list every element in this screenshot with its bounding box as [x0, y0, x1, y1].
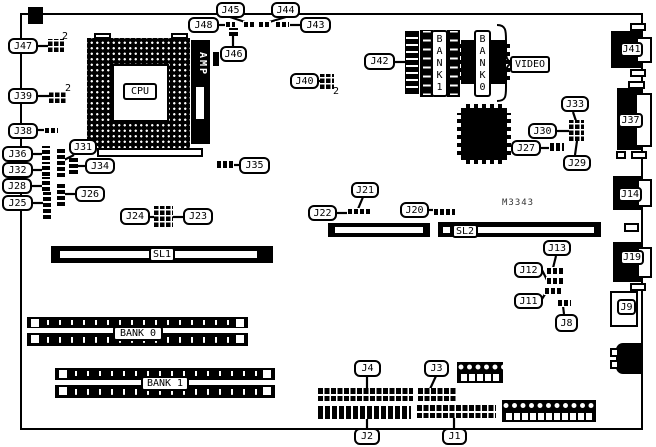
- j38-jumper: [44, 127, 59, 134]
- video-bank1-socket-right: [447, 30, 460, 97]
- edge-tab: [624, 223, 639, 232]
- callout-j12: J12: [514, 262, 543, 278]
- j44-jumper: [258, 21, 271, 28]
- j46-jumper: [229, 28, 238, 36]
- mem-bank0-label: BANK 0: [113, 326, 163, 341]
- video-label: VIDEO: [510, 56, 550, 73]
- j21-j22-jumper: [347, 208, 371, 215]
- callout-j26: J26: [75, 186, 105, 202]
- callout-j45: J45: [216, 2, 245, 18]
- din-keyboard-connector: [28, 7, 43, 24]
- callout-j9: J9: [617, 299, 636, 315]
- callout-j11: J11: [514, 293, 543, 309]
- callout-j25: J25: [2, 195, 33, 211]
- callout-j19: J19: [620, 250, 644, 265]
- slot-sl1-label: SL1: [149, 247, 175, 262]
- j45-jumper: [243, 21, 256, 28]
- power-terminal-small-body: [457, 372, 503, 383]
- j3-header: [418, 388, 456, 401]
- callout-j21: J21: [351, 182, 379, 198]
- j8-jumper: [557, 299, 572, 307]
- callout-j28: J28: [2, 178, 32, 194]
- j1-header: [417, 405, 496, 418]
- callout-j37: J37: [618, 113, 643, 128]
- callout-j41: J41: [620, 42, 643, 57]
- j35-jumper: [216, 160, 234, 169]
- callout-j22: J22: [308, 205, 337, 221]
- power-terminal-small-pins: [457, 362, 503, 372]
- expansion-slot-stripe: [335, 227, 423, 233]
- board-model-text: M3343: [502, 198, 534, 209]
- slot-sl2-label: SL2: [452, 224, 478, 238]
- j36-jumper: [42, 146, 50, 160]
- j12-jumper: [546, 277, 564, 285]
- cpu-label: CPU: [123, 83, 157, 100]
- chipset-chip: [461, 108, 507, 160]
- j27-jumper: [549, 142, 565, 152]
- callout-j46: J46: [220, 46, 247, 62]
- audio-jack-connector: [616, 343, 642, 374]
- callout-j48: J48: [188, 17, 219, 33]
- slot-sl2-stripe: [478, 227, 594, 233]
- j48-jumper: [225, 21, 236, 28]
- callout-j43: J43: [300, 17, 331, 33]
- j25-jumper: [43, 192, 51, 219]
- j28-jumper: [42, 177, 50, 191]
- j40-pin-annotation: 2: [333, 86, 339, 97]
- callout-j1: J1: [442, 428, 467, 445]
- j43-jumper: [275, 21, 290, 28]
- socket-tab: [171, 33, 188, 39]
- edge-tab: [631, 151, 647, 159]
- callout-j40: J40: [290, 73, 319, 89]
- callout-j20: J20: [400, 202, 429, 218]
- j26-jumper: [57, 183, 65, 206]
- callout-j4: J4: [354, 360, 381, 377]
- video-bank1-label: BANK1: [431, 30, 448, 97]
- callout-j8: J8: [555, 314, 578, 332]
- j39-pin-annotation: 2: [65, 83, 71, 94]
- socket-retention-bar: [97, 148, 203, 157]
- power-terminal-large-pins: [502, 400, 596, 411]
- j4-header: [318, 388, 413, 401]
- slot-sl2-notch: [443, 227, 450, 233]
- j32-jumper: [42, 162, 50, 176]
- edge-tab: [630, 23, 646, 31]
- callout-j36: J36: [2, 146, 33, 162]
- callout-j39: J39: [8, 88, 38, 104]
- callout-j34: J34: [85, 158, 115, 174]
- j42-resistor-pack: [405, 31, 419, 94]
- callout-j23: J23: [183, 208, 213, 225]
- j2-header: [318, 406, 411, 419]
- callout-j24: J24: [120, 208, 150, 225]
- callout-j2: J2: [354, 428, 380, 445]
- motherboard-diagram: CPU AMP BANK1 BANK0 VIDEO M3343: [0, 0, 656, 447]
- j31-jumper: [57, 149, 65, 177]
- callout-j32: J32: [2, 162, 33, 178]
- edge-tab: [630, 69, 646, 77]
- callout-j27: J27: [511, 140, 541, 156]
- callout-j42: J42: [364, 53, 395, 70]
- callout-j31: J31: [69, 139, 97, 155]
- power-terminal-large-body: [502, 411, 596, 422]
- audio-jack-nub: [610, 348, 619, 357]
- mem-bank1-label: BANK 1: [141, 376, 189, 391]
- j20-jumper: [433, 208, 456, 216]
- j33-j30-j29-jumper-block: [569, 120, 584, 141]
- video-bank0-label: BANK0: [474, 30, 491, 97]
- j11-jumper: [544, 287, 562, 295]
- j40-jumper: [320, 74, 334, 89]
- callout-j35: J35: [239, 157, 270, 174]
- j34-jumper: [69, 158, 78, 174]
- callout-j3: J3: [424, 360, 449, 377]
- callout-j38: J38: [8, 123, 38, 139]
- regulator-slot: [195, 86, 205, 120]
- callout-j47: J47: [8, 38, 38, 54]
- callout-j14: J14: [618, 187, 642, 202]
- j47-pin-annotation: 2: [62, 31, 68, 42]
- edge-tab: [630, 283, 646, 291]
- socket-tab: [94, 33, 111, 39]
- edge-tab: [628, 81, 645, 89]
- callout-j33: J33: [561, 96, 589, 112]
- j13-jumper: [546, 267, 564, 275]
- j24-j23-jumper-block: [154, 206, 173, 227]
- callout-j44: J44: [271, 2, 300, 18]
- audio-jack-nub: [610, 360, 619, 369]
- callout-j29: J29: [563, 155, 591, 171]
- callout-j13: J13: [543, 240, 571, 256]
- j39-jumper: [49, 91, 66, 103]
- callout-j30: J30: [528, 123, 557, 139]
- amp-label: AMP: [194, 44, 208, 84]
- edge-tab: [616, 151, 626, 159]
- discrete-component: [213, 52, 219, 66]
